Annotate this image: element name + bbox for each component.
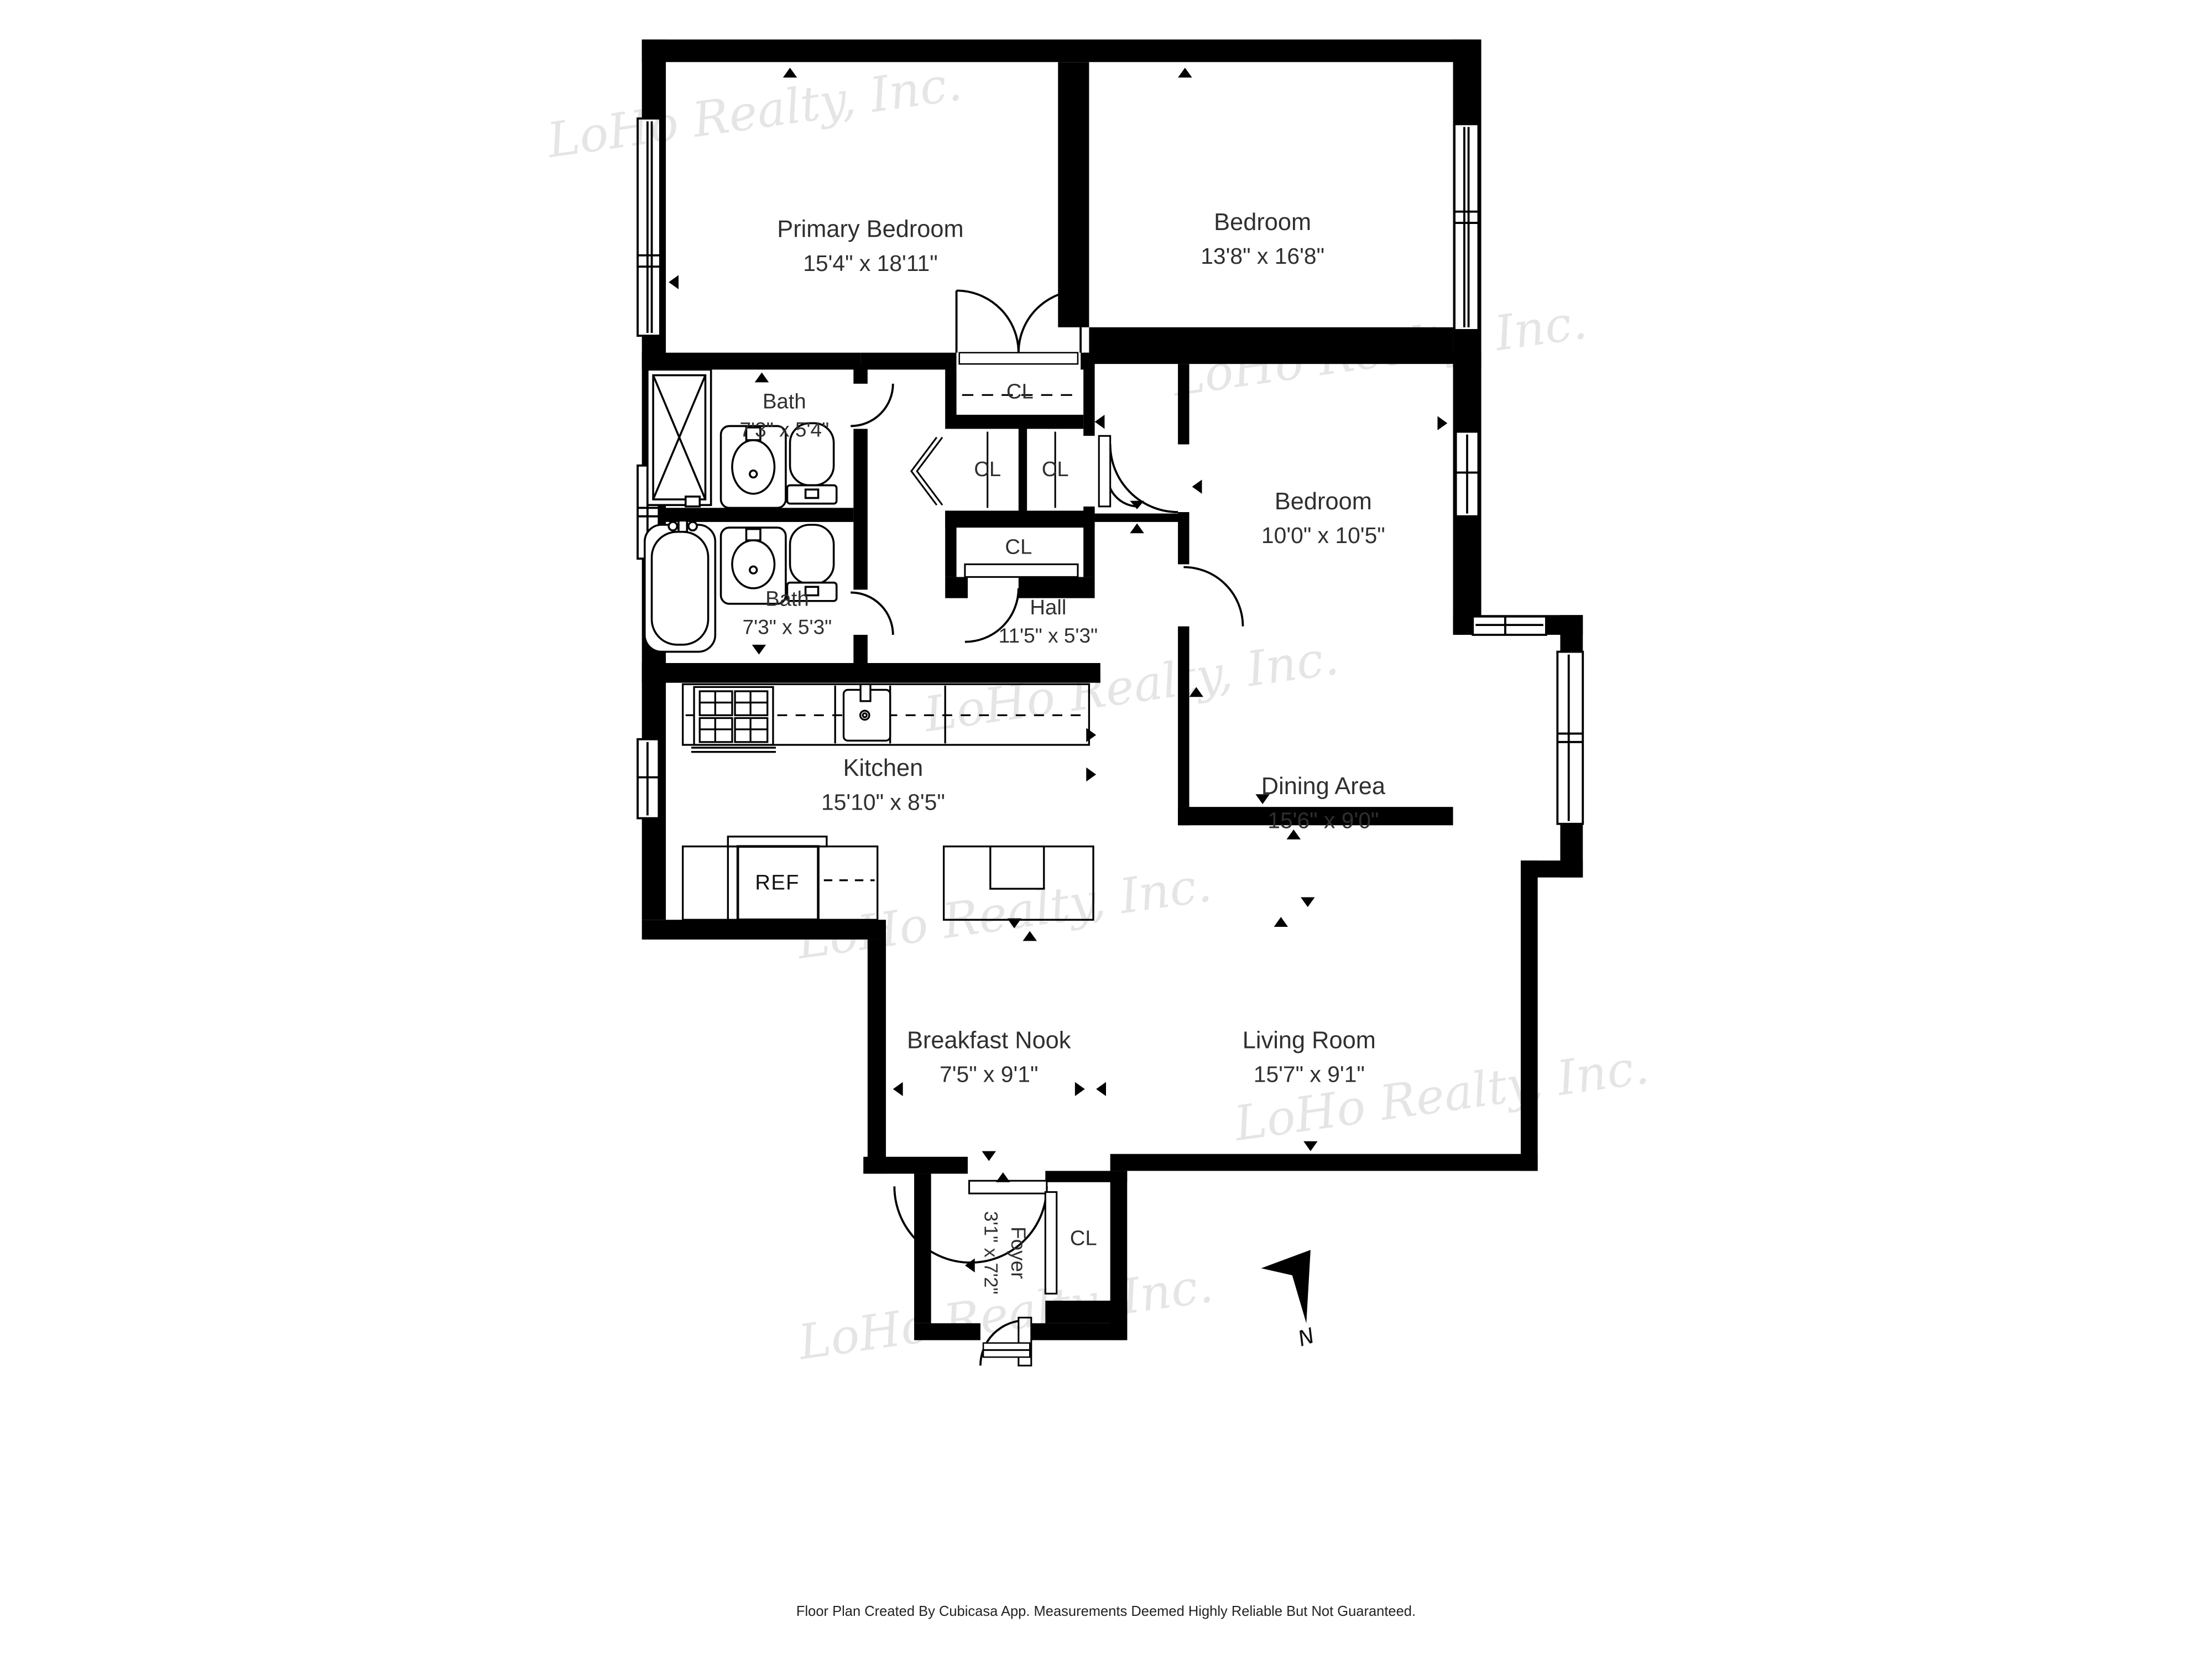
room-dims: 7'5" x 9'1" <box>907 1063 1071 1089</box>
door-leaf <box>969 1181 1047 1193</box>
room-dims: 15'10" x 8'5" <box>821 791 945 817</box>
closet-front-strip <box>965 564 1078 577</box>
window-icon <box>1456 432 1479 517</box>
window-icon <box>1557 652 1583 824</box>
room-dims: 11'5" x 5'3" <box>999 625 1098 648</box>
room-dims: 7'3" x 5'3" <box>743 617 832 640</box>
room-label-foyer: Foyer 3'1" x 7'2" <box>980 1211 1029 1295</box>
closet-label: CL <box>1042 458 1069 482</box>
room-label-dining-area: Dining Area 15'6" x 9'0" <box>1261 773 1385 835</box>
room-dims: 13'8" x 16'8" <box>1201 246 1324 271</box>
room-name: Dining Area <box>1261 773 1385 801</box>
stove-icon <box>691 687 776 752</box>
room-name: Bath <box>739 390 829 414</box>
closet-label: CL <box>974 458 1001 482</box>
window-icon <box>1473 617 1546 635</box>
room-label-hall: Hall 11'5" x 5'3" <box>999 596 1098 648</box>
closet-label: CL <box>1006 380 1034 404</box>
window-icon <box>1454 124 1478 330</box>
room-dims: 15'6" x 9'0" <box>1261 810 1385 835</box>
room-label-bath-top: Bath 7'3" x 5'4" <box>739 390 829 442</box>
room-name: Living Room <box>1243 1027 1376 1055</box>
footer-disclaimer: Floor Plan Created By Cubicasa App. Meas… <box>796 1605 1416 1620</box>
window-icon <box>638 739 659 818</box>
room-label-primary-bedroom: Primary Bedroom 15'4" x 18'11" <box>777 216 963 278</box>
room-name: Breakfast Nook <box>907 1027 1071 1055</box>
shower-icon <box>648 369 711 506</box>
room-dims: 15'7" x 9'1" <box>1243 1063 1376 1089</box>
floorplan-drawing <box>0 0 2212 1659</box>
bathtub-icon <box>645 520 716 651</box>
north-arrow-icon <box>1261 1250 1311 1323</box>
room-dims: 15'4" x 18'11" <box>777 253 963 278</box>
kitchen-sink-icon <box>844 684 890 740</box>
room-name: Hall <box>999 596 1098 620</box>
room-name: Bedroom <box>1201 209 1324 237</box>
closet-label: CL <box>1070 1227 1097 1250</box>
room-label-bedroom-top: Bedroom 13'8" x 16'8" <box>1201 209 1324 271</box>
door-leaf <box>1099 436 1110 507</box>
door-arc <box>957 291 1019 353</box>
room-label-living-room: Living Room 15'7" x 9'1" <box>1243 1027 1376 1089</box>
closet-opening-strip <box>959 353 1078 364</box>
floor-plan-page: LoHo Realty, Inc. LoHo Realty, Inc. LoHo… <box>0 0 2212 1659</box>
door-arc <box>1183 567 1243 627</box>
room-label-bedroom-middle: Bedroom 10'0" x 10'5" <box>1261 488 1385 550</box>
bifold-door-icon <box>911 437 942 505</box>
door-leaf <box>1045 1192 1056 1294</box>
room-label-bath-bottom: Bath 7'3" x 5'3" <box>743 587 832 639</box>
room-dims: 7'3" x 5'4" <box>739 420 829 442</box>
room-dims: 10'0" x 10'5" <box>1261 525 1385 550</box>
room-name: Foyer <box>1006 1211 1029 1295</box>
closet-label: CL <box>1005 535 1032 559</box>
room-name: Bath <box>743 587 832 611</box>
refrigerator-label: REF <box>755 871 799 895</box>
room-dims: 3'1" x 7'2" <box>980 1211 1001 1295</box>
room-label-breakfast-nook: Breakfast Nook 7'5" x 9'1" <box>907 1027 1071 1089</box>
room-name: Kitchen <box>821 755 945 783</box>
room-label-kitchen: Kitchen 15'10" x 8'5" <box>821 755 945 817</box>
room-name: Primary Bedroom <box>777 216 963 244</box>
room-name: Bedroom <box>1261 488 1385 517</box>
